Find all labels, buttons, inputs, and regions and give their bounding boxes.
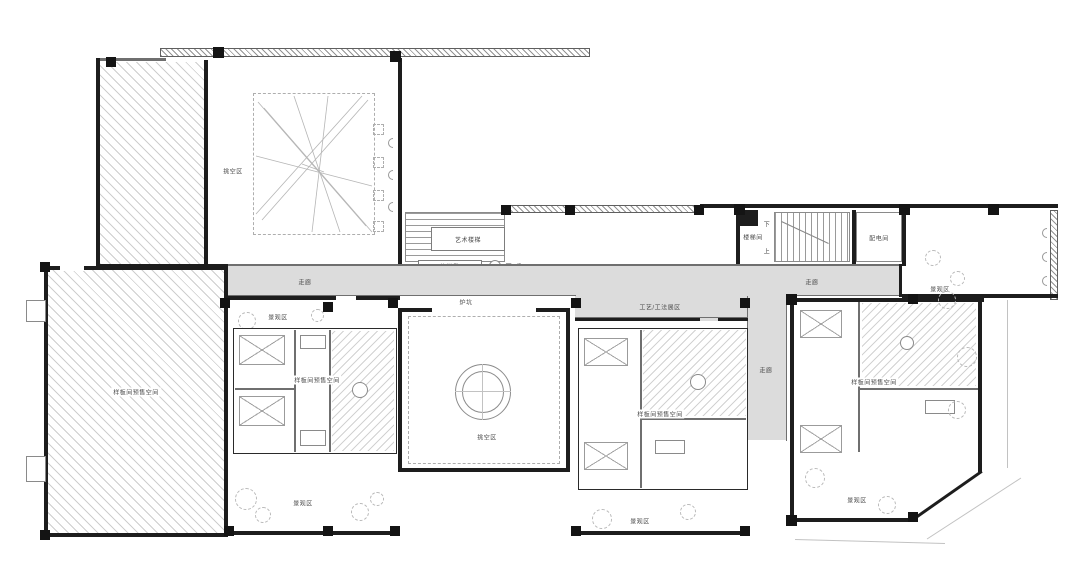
landscape-label-bl-bottom: 景观区 [293,499,313,508]
window-arc [388,202,398,212]
void-opening-outline [253,93,375,235]
wall-segment [790,518,918,522]
tree-symbol [592,509,612,529]
wall-segment [902,210,906,266]
structural-column [734,204,745,215]
tree-symbol [878,496,896,514]
bed-symbol [800,425,842,453]
table-symbol [352,382,368,398]
door-opening [336,296,356,300]
showroom-label-bm: 样板间预售空间 [636,410,684,419]
art-stair-label-box: 艺术楼梯 [431,227,505,251]
wall-segment [736,210,740,266]
structural-column [388,298,398,308]
partition-wall [235,388,295,390]
living-area-hatch [643,330,746,416]
wall-segment [44,533,228,537]
tree-symbol [957,347,977,367]
wall-segment [228,531,400,535]
exterior-niche [26,300,46,322]
door-opening [700,318,718,321]
landscape-label-bl-top: 景观区 [268,313,288,322]
craft-zone-label: 工艺/工法展区 [639,303,680,312]
fire-pit-label: 炉坑 [459,298,472,307]
window-arc [388,170,398,180]
center-axis-line [482,364,483,420]
art-stair-label: 艺术楼梯 [455,235,481,244]
wall-segment [1050,210,1058,300]
stair-up-label: 上 [764,247,771,256]
wall-segment [790,298,794,522]
structural-column [740,526,750,536]
structural-column [390,526,400,536]
bed-symbol [584,442,628,470]
stair-room-label: 楼梯间 [743,233,763,242]
structural-column [40,262,50,272]
tree-symbol [805,468,825,488]
wall-segment [700,204,1058,208]
corridor-label-vertical: 走廊 [759,366,772,375]
showroom-label-left: 样板间预售空间 [111,388,161,397]
structural-column [786,294,797,305]
bed-symbol [584,338,628,366]
structural-column [908,294,918,304]
window-mullion [373,124,384,135]
sofa-symbol [655,440,685,454]
structural-column [323,526,333,536]
site-boundary-line [1007,300,1008,468]
wall-segment [536,308,570,312]
wall-segment [575,531,748,535]
structural-column [106,57,116,67]
structural-column [694,205,704,215]
structural-column [565,205,575,215]
door-opening [60,265,84,271]
structural-column [213,47,224,58]
floor-plan-canvas: 挑空区 艺术楼梯 换鞋凳 下3步 楼梯间 下 上 配电间 景观区 走廊 走廊 [0,0,1080,585]
wall-line [786,296,787,441]
wall-segment [566,308,570,472]
structural-column [571,298,581,308]
showroom-left-hatch [48,270,224,533]
window-mullion [373,157,384,168]
structural-column [220,298,230,308]
escalator-lines [254,94,374,234]
window-mullion [373,221,384,232]
tree-symbol [255,507,271,523]
wall-segment [398,58,402,268]
partition-wall [294,330,296,452]
partition-wall [860,388,978,390]
circular-void-feature-inner [462,371,504,413]
wall-line [228,264,902,266]
wall-segment [978,298,982,472]
corridor-label-right: 走廊 [805,278,818,287]
bed-symbol [239,396,285,426]
bed-symbol [239,335,285,365]
table-symbol [900,336,914,350]
bed-symbol [800,310,842,338]
window-mullion [373,190,384,201]
tree-symbol [938,291,956,309]
landscape-label-right: 景观区 [847,496,867,505]
room-label-void-center: 挑空区 [477,433,497,442]
tree-symbol [370,492,384,506]
site-boundary-line [795,539,945,544]
showroom-label-bl: 样板间预售空间 [293,376,341,385]
wall-segment-diagonal [912,470,983,521]
tree-symbol [925,250,941,266]
power-room-label: 配电间 [869,234,889,243]
wall-segment [398,308,402,472]
structural-column [740,298,750,308]
tree-symbol [948,401,966,419]
tree-symbol [235,488,257,510]
cabinet-symbol [300,430,326,446]
wall-segment [160,48,590,57]
window-arc [388,138,398,148]
structural-column [40,530,50,540]
terrace-hatch [100,62,204,264]
structural-column [501,205,511,215]
structural-column [571,526,581,536]
stair-down-label: 下 [764,220,771,229]
structural-column [988,204,999,215]
center-axis-line [455,391,511,392]
cabinet-symbol [300,335,326,349]
wall-line [787,295,901,296]
room-label-void-top: 挑空区 [223,167,243,176]
structural-column [908,512,918,522]
corridor-main [228,266,900,296]
structural-column [323,302,333,312]
exterior-niche [26,456,46,482]
wall-segment [899,264,902,297]
corridor-label-left: 走廊 [298,278,311,287]
tree-symbol [351,503,369,521]
table-symbol [690,374,706,390]
site-boundary-line [927,478,1021,540]
showroom-label-right: 样板间预售空间 [850,378,898,387]
structural-column [786,515,797,526]
living-area-hatch [862,303,976,386]
landscape-label-bm: 景观区 [630,517,650,526]
tree-symbol [950,271,965,286]
structural-column [224,526,234,536]
wall-segment [505,205,703,213]
wall-segment [204,60,208,266]
wall-segment [575,318,748,321]
structural-column [390,51,401,62]
structural-column [899,204,910,215]
wall-segment [398,468,570,472]
stair-flight [774,212,850,262]
wall-segment [228,296,400,300]
tree-symbol [680,504,696,520]
partition-wall [329,330,331,452]
wall-segment [398,308,432,312]
